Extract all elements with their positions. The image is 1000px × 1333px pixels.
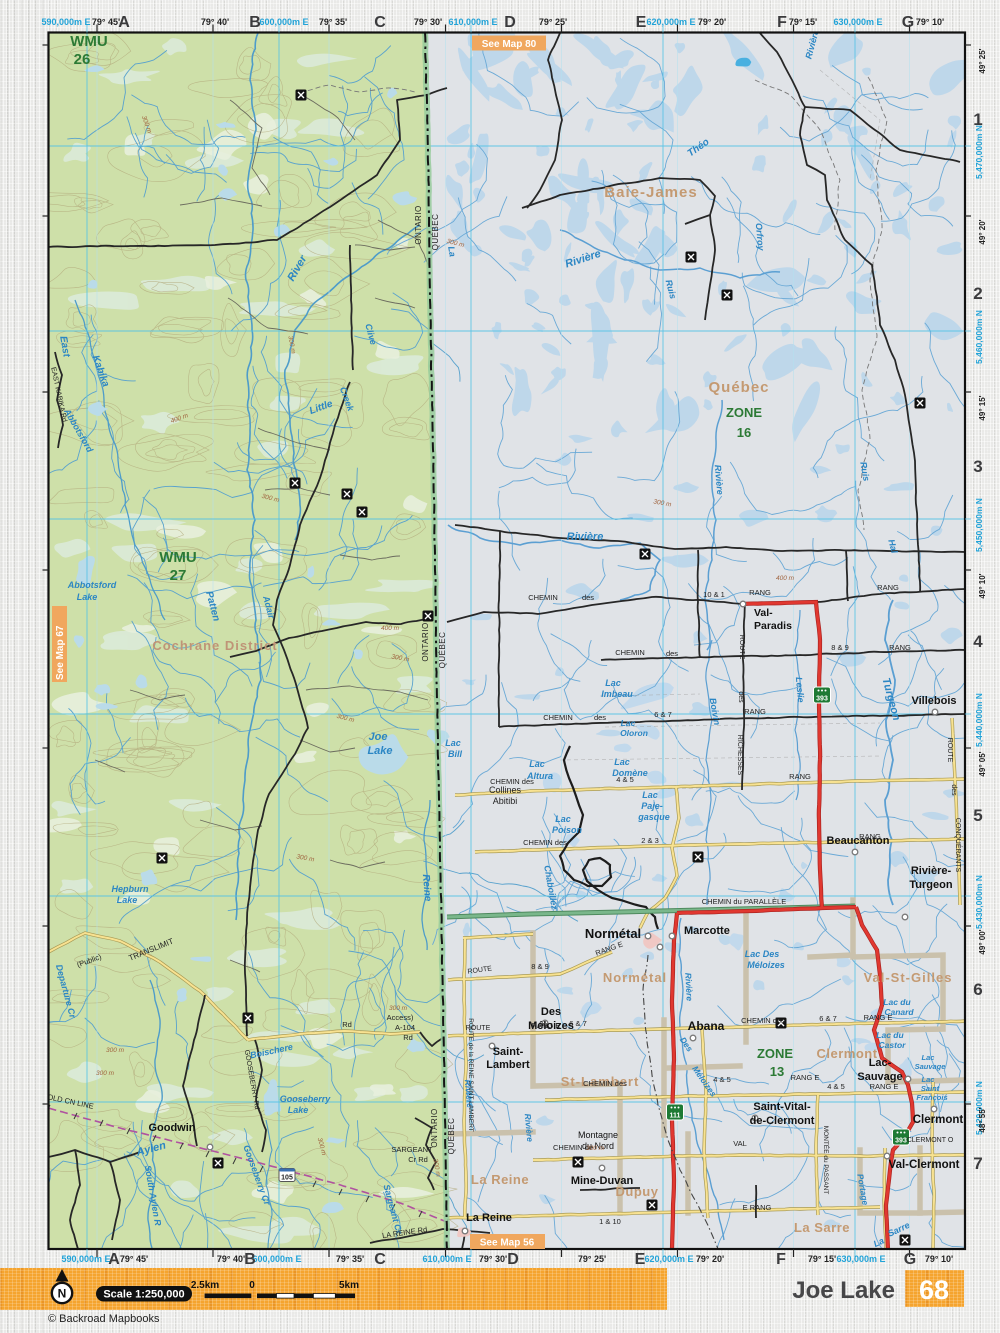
svg-text:RANG: RANG: [859, 832, 881, 841]
svg-text:300 m: 300 m: [201, 1306, 220, 1313]
svg-text:Des: Des: [541, 1006, 561, 1018]
svg-text:6 & 7: 6 & 7: [819, 1014, 837, 1023]
svg-text:SARGEANT: SARGEANT: [391, 1145, 433, 1154]
svg-text:ROUTE: ROUTE: [946, 738, 953, 763]
svg-text:7: 7: [973, 1154, 982, 1173]
svg-text:CLERMONT O: CLERMONT O: [907, 1137, 954, 1144]
svg-text:Oloron: Oloron: [620, 728, 648, 738]
svg-text:La Reine: La Reine: [466, 1212, 512, 1224]
svg-text:Lac: Lac: [922, 1053, 936, 1062]
svg-text:Montagne: Montagne: [578, 1130, 618, 1140]
svg-text:See Map 67: See Map 67: [55, 625, 66, 680]
svg-text:gasque: gasque: [637, 812, 670, 822]
svg-text:630,000m E: 630,000m E: [833, 17, 882, 27]
svg-text:ROUTE: ROUTE: [738, 635, 745, 660]
svg-text:49° 25': 49° 25': [978, 48, 987, 73]
svg-text:VAL: VAL: [733, 1139, 747, 1148]
svg-text:79° 30': 79° 30': [414, 17, 442, 27]
svg-text:CHEMIN des: CHEMIN des: [741, 1016, 785, 1025]
svg-text:QUÉBEC: QUÉBEC: [438, 632, 447, 669]
svg-text:CHEMIN: CHEMIN: [543, 713, 573, 722]
svg-text:RANG: RANG: [749, 588, 771, 597]
svg-text:49° 15': 49° 15': [978, 395, 987, 420]
svg-text:Marcotte: Marcotte: [684, 925, 730, 937]
svg-text:A-104: A-104: [395, 1023, 415, 1032]
svg-text:CONQUÉRANTS: CONQUÉRANTS: [954, 818, 963, 873]
svg-text:Val-Clermont: Val-Clermont: [889, 1159, 960, 1171]
svg-text:600,000m E: 600,000m E: [252, 1254, 301, 1264]
svg-text:La Sarre: La Sarre: [794, 1220, 850, 1235]
svg-text:4 & 5: 4 & 5: [827, 1082, 845, 1091]
svg-text:6 & 7: 6 & 7: [654, 710, 672, 719]
svg-text:ONTARIO: ONTARIO: [414, 205, 423, 244]
svg-text:Saint: Saint: [921, 1084, 940, 1093]
svg-text:8 & 9: 8 & 9: [831, 643, 849, 652]
svg-text:La Reine: La Reine: [471, 1172, 529, 1187]
svg-text:1 & 10: 1 & 10: [599, 1217, 621, 1226]
svg-text:Castor: Castor: [879, 1040, 907, 1050]
svg-text:Méloizes: Méloizes: [747, 960, 785, 970]
svg-text:Baie-James: Baie-James: [604, 184, 697, 201]
svg-text:Lac du: Lac du: [883, 997, 911, 1007]
svg-text:79° 10': 79° 10': [916, 17, 944, 27]
svg-text:6 & 7: 6 & 7: [569, 1019, 587, 1028]
svg-text:Lac: Lac: [555, 814, 571, 824]
svg-text:ZONE: ZONE: [726, 405, 762, 420]
svg-text:79° 25': 79° 25': [539, 17, 567, 27]
svg-text:Abana: Abana: [688, 1019, 725, 1033]
svg-text:E: E: [635, 1251, 646, 1268]
svg-text:Lac-: Lac-: [869, 1057, 892, 1069]
svg-text:5,450,000m N: 5,450,000m N: [974, 498, 984, 552]
svg-text:ONTARIO: ONTARIO: [430, 1108, 439, 1147]
svg-text:CHEMIN des: CHEMIN des: [490, 777, 534, 786]
svg-text:49° 20': 49° 20': [978, 219, 987, 244]
svg-text:Val-St-Gilles: Val-St-Gilles: [864, 970, 953, 985]
svg-text:5,430,000m N: 5,430,000m N: [974, 875, 984, 929]
svg-text:79° 20': 79° 20': [698, 17, 726, 27]
svg-text:10 & 1: 10 & 1: [703, 590, 725, 599]
svg-text:QUÉBEC: QUÉBEC: [447, 1118, 456, 1155]
svg-text:Cochrane District: Cochrane District: [152, 638, 277, 653]
svg-text:Rivière: Rivière: [567, 531, 604, 543]
svg-text:RANG: RANG: [744, 707, 766, 716]
svg-text:F: F: [777, 14, 787, 31]
svg-text:D: D: [507, 1251, 519, 1268]
svg-text:F: F: [776, 1251, 786, 1268]
svg-text:Lac: Lac: [529, 759, 545, 769]
svg-text:Abbotsford: Abbotsford: [67, 580, 117, 590]
svg-text:G: G: [902, 14, 914, 31]
svg-text:610,000m E: 610,000m E: [422, 1254, 471, 1264]
svg-text:Lac: Lac: [922, 1075, 936, 1084]
svg-text:E RANG: E RANG: [743, 1203, 772, 1212]
svg-text:48° 55': 48° 55': [978, 1107, 987, 1132]
svg-text:4 & 5: 4 & 5: [713, 1075, 731, 1084]
svg-text:WMU: WMU: [70, 33, 108, 50]
svg-text:Normétal: Normétal: [585, 926, 641, 941]
svg-text:RICHESSES: RICHESSES: [736, 735, 743, 776]
svg-text:13: 13: [770, 1064, 784, 1079]
svg-text:79° 15': 79° 15': [808, 1254, 836, 1264]
svg-text:RANG E: RANG E: [864, 1013, 893, 1022]
svg-text:Abitibi: Abitibi: [493, 796, 518, 806]
svg-text:François: François: [916, 1093, 947, 1102]
svg-text:79° 20': 79° 20': [696, 1254, 724, 1264]
svg-text:RANG E: RANG E: [532, 1021, 561, 1030]
svg-text:5: 5: [973, 806, 982, 825]
svg-text:Saint-: Saint-: [493, 1046, 524, 1058]
svg-text:111: 111: [670, 1113, 681, 1120]
svg-text:Rd: Rd: [342, 1020, 352, 1029]
svg-text:2 & 3: 2 & 3: [641, 836, 659, 845]
svg-text:B: B: [249, 14, 261, 31]
svg-text:RANG: RANG: [889, 643, 911, 652]
svg-text:393: 393: [816, 696, 828, 703]
svg-text:QUÉBEC: QUÉBEC: [431, 214, 440, 251]
svg-text:Lake: Lake: [367, 745, 392, 757]
svg-text:A: A: [108, 1251, 120, 1268]
svg-text:CHEMIN des: CHEMIN des: [523, 838, 567, 847]
svg-text:Villebois: Villebois: [911, 695, 956, 707]
svg-text:300 m: 300 m: [106, 1047, 125, 1054]
svg-text:Lake: Lake: [117, 895, 138, 905]
svg-text:Collines: Collines: [489, 785, 522, 795]
svg-text:300 m: 300 m: [586, 1145, 605, 1152]
svg-text:RANG E: RANG E: [870, 1082, 899, 1091]
svg-text:C: C: [374, 1251, 386, 1268]
svg-text:400 m: 400 m: [776, 575, 795, 582]
svg-text:Paradis: Paradis: [754, 620, 792, 632]
svg-text:Paje-: Paje-: [641, 801, 663, 811]
svg-text:RANG: RANG: [789, 772, 811, 781]
svg-text:79° 35': 79° 35': [319, 17, 347, 27]
svg-text:49° 05': 49° 05': [978, 751, 987, 776]
svg-text:5,470,000m N: 5,470,000m N: [974, 125, 984, 179]
svg-text:6: 6: [973, 980, 982, 999]
svg-text:RANG E: RANG E: [791, 1073, 820, 1082]
svg-text:de-Clermont: de-Clermont: [750, 1115, 815, 1127]
svg-text:CHEMIN: CHEMIN: [615, 648, 645, 657]
svg-text:16: 16: [737, 425, 751, 440]
svg-text:8 & 9: 8 & 9: [531, 962, 549, 971]
svg-text:Lac Des: Lac Des: [745, 949, 780, 959]
svg-text:RANG: RANG: [877, 583, 899, 592]
svg-text:49° 00': 49° 00': [978, 929, 987, 954]
svg-text:des: des: [582, 593, 594, 602]
svg-text:des: des: [737, 691, 744, 703]
svg-text:See Map 56: See Map 56: [480, 1238, 535, 1249]
svg-text:79° 40': 79° 40': [201, 17, 229, 27]
svg-text:Lake: Lake: [77, 592, 98, 602]
svg-text:2: 2: [973, 284, 982, 303]
svg-text:79° 10': 79° 10': [925, 1254, 953, 1264]
svg-text:CHEMIN du PARALLÈLE: CHEMIN du PARALLÈLE: [702, 897, 786, 906]
svg-text:WMU: WMU: [159, 549, 197, 566]
svg-text:4 & 5: 4 & 5: [616, 775, 634, 784]
svg-text:Clermont: Clermont: [913, 1114, 964, 1126]
svg-text:CHEMIN: CHEMIN: [528, 593, 558, 602]
svg-text:des: des: [950, 784, 957, 796]
svg-text:610,000m E: 610,000m E: [448, 17, 497, 27]
svg-text:620,000m E: 620,000m E: [646, 17, 695, 27]
svg-text:79° 15': 79° 15': [789, 17, 817, 27]
svg-text:Joe: Joe: [369, 731, 388, 743]
svg-text:Lac: Lac: [621, 718, 636, 728]
svg-text:des: des: [594, 713, 606, 722]
svg-text:79° 45': 79° 45': [120, 1254, 148, 1264]
svg-text:393: 393: [895, 1138, 907, 1145]
svg-text:Goodwin: Goodwin: [148, 1122, 195, 1134]
svg-text:E: E: [636, 14, 647, 31]
svg-text:Turgeon: Turgeon: [909, 879, 952, 891]
svg-text:79° 35': 79° 35': [336, 1254, 364, 1264]
svg-text:3: 3: [973, 457, 982, 476]
svg-text:G: G: [904, 1251, 916, 1268]
svg-text:des: des: [666, 649, 678, 658]
svg-text:Imbeau: Imbeau: [601, 689, 633, 699]
svg-text:Rivière: Rivière: [683, 972, 694, 1001]
svg-text:Lac: Lac: [605, 678, 621, 688]
svg-text:Lac: Lac: [445, 738, 461, 748]
svg-text:Lambert: Lambert: [486, 1059, 530, 1071]
svg-text:Poison: Poison: [552, 825, 583, 835]
svg-text:Rd: Rd: [403, 1033, 413, 1042]
svg-text:Access): Access): [387, 1013, 414, 1022]
svg-text:Lac: Lac: [642, 790, 658, 800]
svg-text:26: 26: [74, 51, 91, 68]
svg-text:600,000m E: 600,000m E: [259, 17, 308, 27]
svg-text:B: B: [244, 1251, 256, 1268]
svg-text:Québec: Québec: [708, 379, 769, 396]
svg-text:400 m: 400 m: [381, 625, 400, 632]
svg-text:ZONE: ZONE: [757, 1046, 793, 1061]
svg-text:Bill: Bill: [448, 749, 463, 759]
svg-text:4: 4: [973, 632, 983, 651]
svg-text:620,000m E: 620,000m E: [644, 1254, 693, 1264]
svg-text:Saint-Vital-: Saint-Vital-: [753, 1101, 811, 1113]
svg-text:590,000m E: 590,000m E: [61, 1254, 110, 1264]
svg-text:ONTARIO: ONTARIO: [421, 622, 430, 661]
svg-text:5,460,000m N: 5,460,000m N: [974, 310, 984, 364]
svg-text:5,440,000m N: 5,440,000m N: [974, 693, 984, 747]
svg-text:27: 27: [170, 567, 187, 584]
svg-text:Lac du: Lac du: [876, 1030, 904, 1040]
svg-text:ROUTE de la REINE SAINT LAMBE: ROUTE de la REINE SAINT LAMBERT: [467, 1018, 474, 1132]
svg-text:630,000m E: 630,000m E: [836, 1254, 885, 1264]
svg-text:C: C: [374, 14, 386, 31]
svg-text:CHEMIN des: CHEMIN des: [583, 1079, 627, 1088]
svg-text:Normétal: Normétal: [603, 970, 667, 985]
svg-text:79° 30': 79° 30': [479, 1254, 507, 1264]
svg-text:Hepburn: Hepburn: [112, 884, 150, 894]
svg-text:Cr Rd: Cr Rd: [408, 1155, 428, 1164]
svg-text:Lac: Lac: [614, 757, 630, 767]
svg-text:Sauvage: Sauvage: [915, 1062, 946, 1071]
svg-text:Gooseberry: Gooseberry: [280, 1094, 332, 1104]
svg-text:79° 40': 79° 40': [217, 1254, 245, 1264]
svg-text:Lake: Lake: [288, 1105, 309, 1115]
svg-text:A: A: [118, 14, 130, 31]
svg-text:590,000m E: 590,000m E: [41, 17, 90, 27]
svg-text:300 m: 300 m: [96, 1070, 115, 1077]
svg-text:300 m: 300 m: [389, 1005, 408, 1012]
svg-text:79° 45': 79° 45': [92, 17, 120, 27]
svg-text:79° 25': 79° 25': [578, 1254, 606, 1264]
svg-text:See Map 80: See Map 80: [482, 39, 537, 50]
svg-text:Val-: Val-: [754, 607, 773, 619]
svg-text:49° 10': 49° 10': [978, 573, 987, 598]
svg-text:Rivière-: Rivière-: [911, 865, 952, 877]
svg-text:Mine-Duvan: Mine-Duvan: [571, 1175, 634, 1187]
svg-text:MONTÉE du PASSANT: MONTÉE du PASSANT: [822, 1126, 831, 1195]
svg-text:D: D: [504, 14, 516, 31]
svg-text:105: 105: [281, 1175, 293, 1182]
